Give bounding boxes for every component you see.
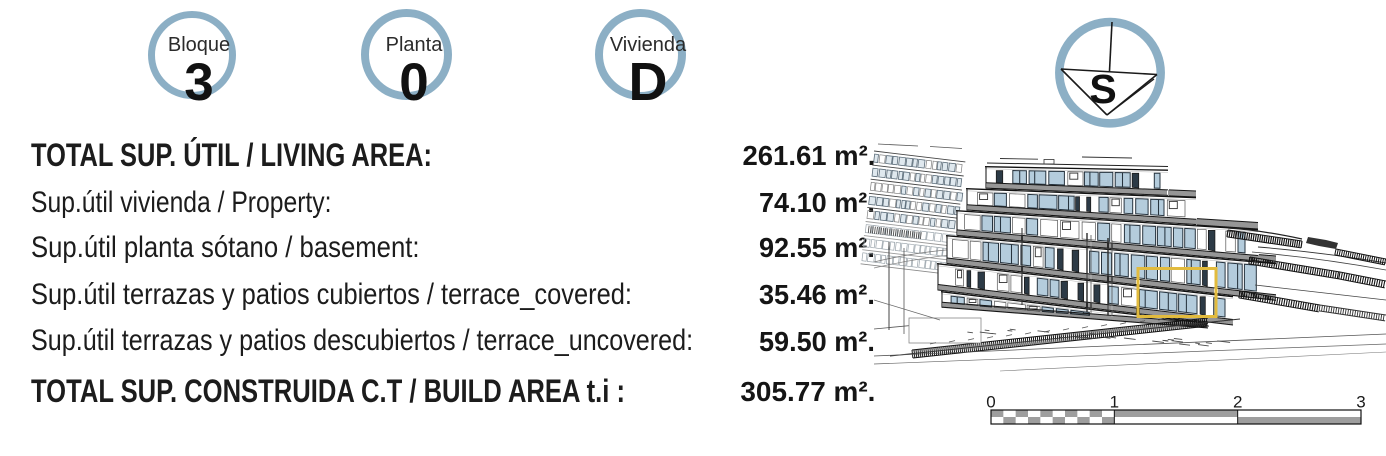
svg-text:3: 3 xyxy=(1356,393,1365,412)
svg-text:2: 2 xyxy=(1233,393,1242,412)
svg-text:1: 1 xyxy=(1110,393,1119,412)
svg-text:S: S xyxy=(1089,66,1116,112)
svg-text:0: 0 xyxy=(986,393,995,412)
